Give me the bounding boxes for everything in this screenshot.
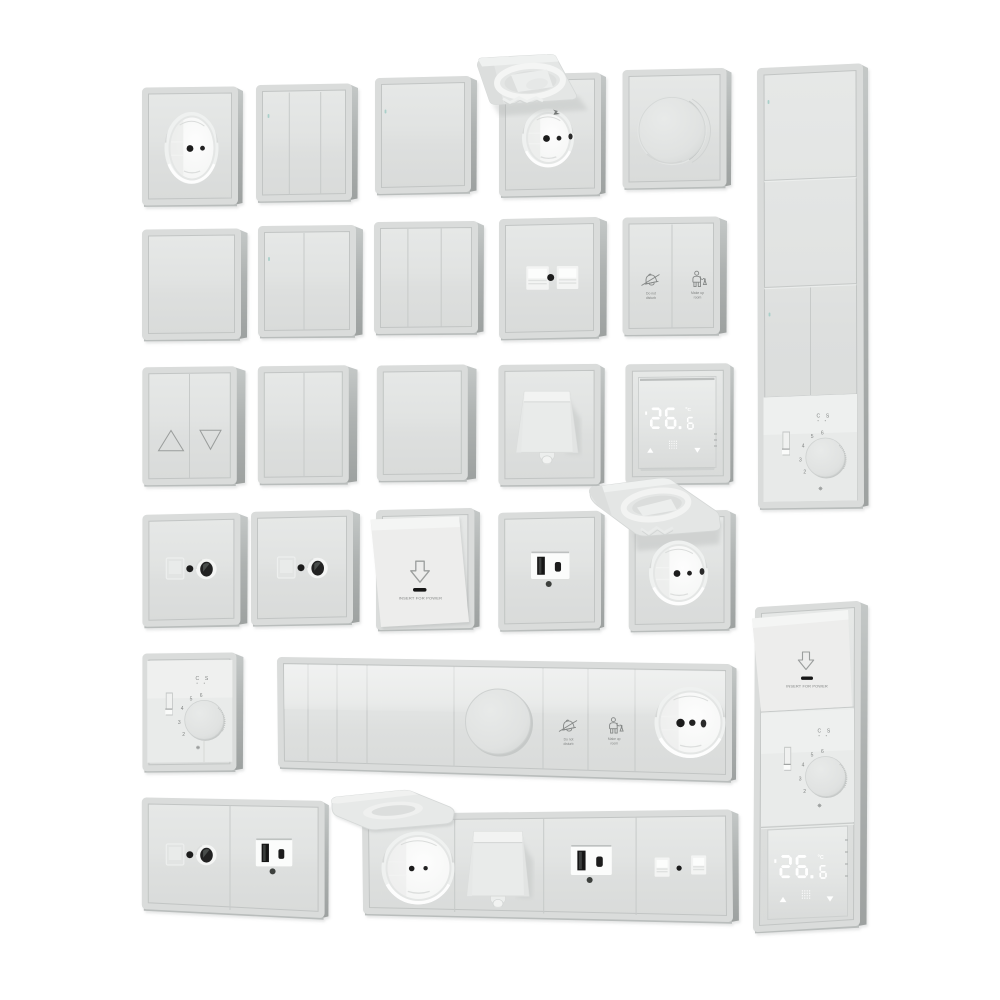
svg-text:3: 3	[799, 458, 802, 464]
svg-text:4: 4	[802, 444, 805, 450]
svg-text:C S: C S	[817, 414, 832, 420]
svg-text:INSERT FOR POWER: INSERT FOR POWER	[786, 684, 828, 689]
svg-text:4: 4	[181, 706, 184, 712]
svg-text:3: 3	[799, 777, 802, 783]
svg-text:disturb: disturb	[646, 296, 656, 300]
svg-text:room: room	[610, 742, 618, 746]
svg-text:C S: C S	[818, 729, 833, 735]
svg-text:Make up: Make up	[691, 291, 704, 295]
svg-text:°C: °C	[818, 854, 824, 861]
svg-text:room: room	[694, 296, 702, 300]
svg-text:5: 5	[811, 434, 814, 440]
svg-text:2: 2	[803, 470, 806, 476]
svg-text:disturb: disturb	[564, 742, 574, 746]
svg-text:°C: °C	[685, 407, 691, 413]
svg-text:C S: C S	[196, 676, 211, 682]
svg-text:2: 2	[182, 732, 185, 738]
svg-text:3: 3	[178, 720, 181, 726]
svg-text:Do not: Do not	[564, 738, 574, 742]
svg-text:Make up: Make up	[608, 737, 621, 741]
svg-text:4: 4	[802, 762, 805, 768]
svg-text:INSERT FOR POWER: INSERT FOR POWER	[399, 596, 443, 601]
svg-text:6: 6	[821, 431, 824, 437]
svg-text:6: 6	[821, 749, 824, 755]
svg-text:Do not: Do not	[646, 292, 656, 296]
svg-text:5: 5	[811, 753, 814, 759]
svg-text:2: 2	[803, 789, 806, 795]
svg-text:5: 5	[190, 697, 193, 703]
svg-text:6: 6	[200, 693, 203, 699]
